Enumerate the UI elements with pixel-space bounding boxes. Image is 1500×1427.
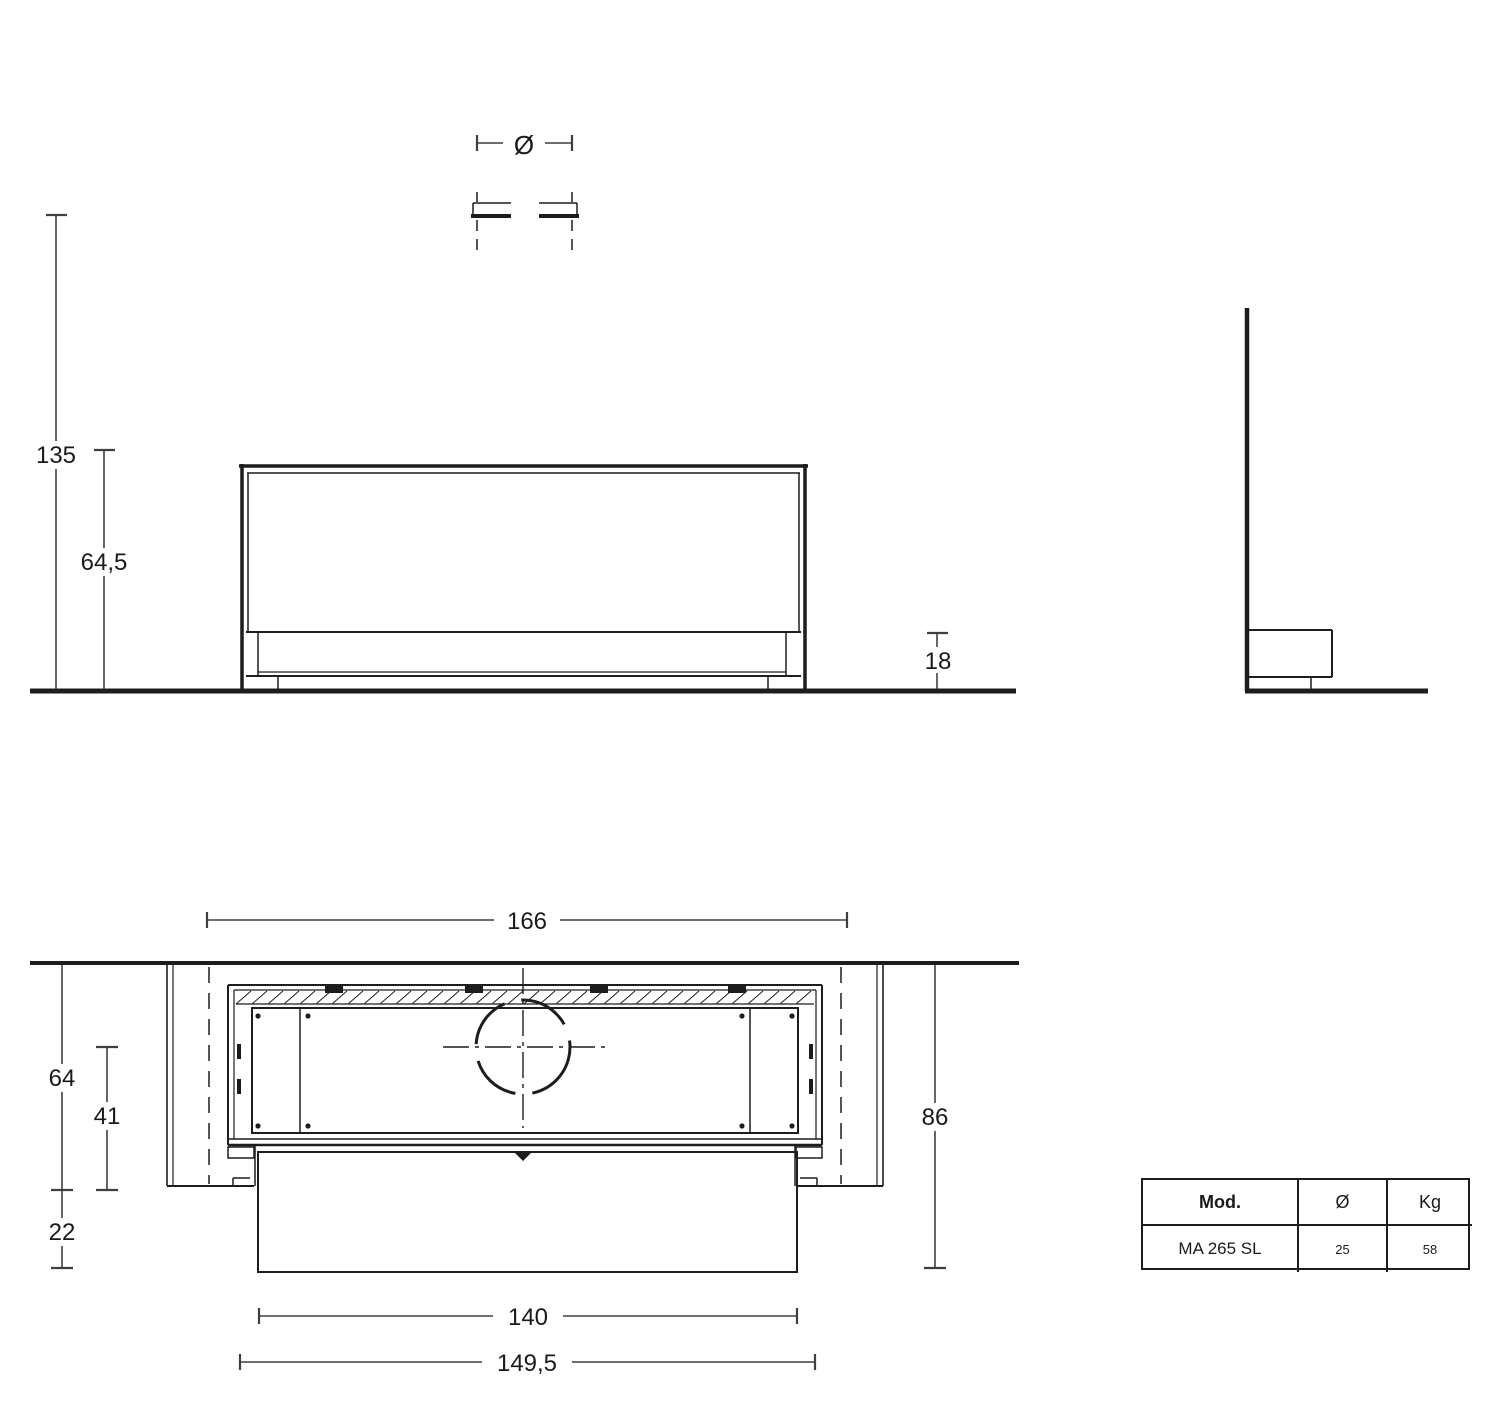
spec-header-diameter: Ø [1299, 1180, 1388, 1226]
panel-center-mark [515, 1153, 531, 1161]
recess-depth-dimension: 64 [37, 965, 87, 1190]
body-width-label: 149,5 [497, 1350, 557, 1377]
specification-table: Mod. Ø Kg MA 265 SL 25 58 [1141, 1178, 1470, 1270]
spec-header-weight: Kg [1388, 1180, 1472, 1226]
spec-value-weight: 58 [1388, 1226, 1472, 1272]
recess-width-label: 166 [507, 908, 547, 935]
screw-holes [255, 1013, 794, 1128]
vent-slot [590, 986, 608, 993]
recess-width-dimension: 166 [207, 906, 847, 935]
front-overhang-dimension: 22 [37, 1190, 87, 1268]
spec-header-model: Mod. [1143, 1180, 1299, 1226]
flue-axis-depth-label: 41 [94, 1103, 121, 1130]
overall-height-label: 135 [36, 442, 76, 469]
glass-top-height-dimension: 64,5 [73, 450, 135, 689]
side-channel-clips [237, 1044, 813, 1094]
technical-drawing-sheet: Ø [0, 0, 1500, 1427]
overall-height-dimension: 135 [31, 215, 81, 689]
front-panel-outline [258, 1152, 797, 1272]
mounting-foot [228, 1147, 254, 1158]
vent-slot [728, 986, 746, 993]
overall-depth-label: 86 [922, 1104, 949, 1131]
left-chase-wall [167, 963, 254, 1186]
side-elevation-view [1245, 308, 1428, 691]
vent-slot [325, 986, 343, 993]
body-width-dimension: 149,5 [240, 1348, 815, 1377]
front-elevation-view [30, 464, 1016, 691]
right-chase-wall [796, 963, 883, 1186]
front-panel-width-dimension: 140 [259, 1302, 797, 1331]
overall-depth-dimension: 86 [910, 965, 960, 1268]
base-band-height-label: 18 [925, 648, 952, 675]
flue-pipe-outline [471, 192, 579, 258]
base-band-height-dimension: 18 [921, 633, 955, 689]
flue-axis-depth-dimension: 41 [82, 1047, 132, 1190]
plan-section-view: 166 64 22 41 [30, 906, 1019, 1377]
glass-top-height-label: 64,5 [81, 549, 128, 576]
flue-diameter-dimension: Ø [477, 128, 572, 160]
vent-slot [465, 986, 483, 993]
spec-value-model: MA 265 SL [1143, 1226, 1299, 1272]
mounting-foot [796, 1147, 822, 1158]
front-view-dimensions: 135 64,5 18 [31, 215, 955, 689]
front-overhang-label: 22 [49, 1219, 76, 1246]
spec-value-diameter: 25 [1299, 1226, 1388, 1272]
front-panel-plan [258, 1152, 797, 1272]
firebox-inner-outline [252, 1008, 798, 1133]
flue-diameter-label: Ø [514, 130, 534, 160]
flue-collar-detail: Ø [471, 128, 579, 258]
front-panel-width-label: 140 [508, 1304, 548, 1331]
recess-depth-label: 64 [49, 1065, 76, 1092]
